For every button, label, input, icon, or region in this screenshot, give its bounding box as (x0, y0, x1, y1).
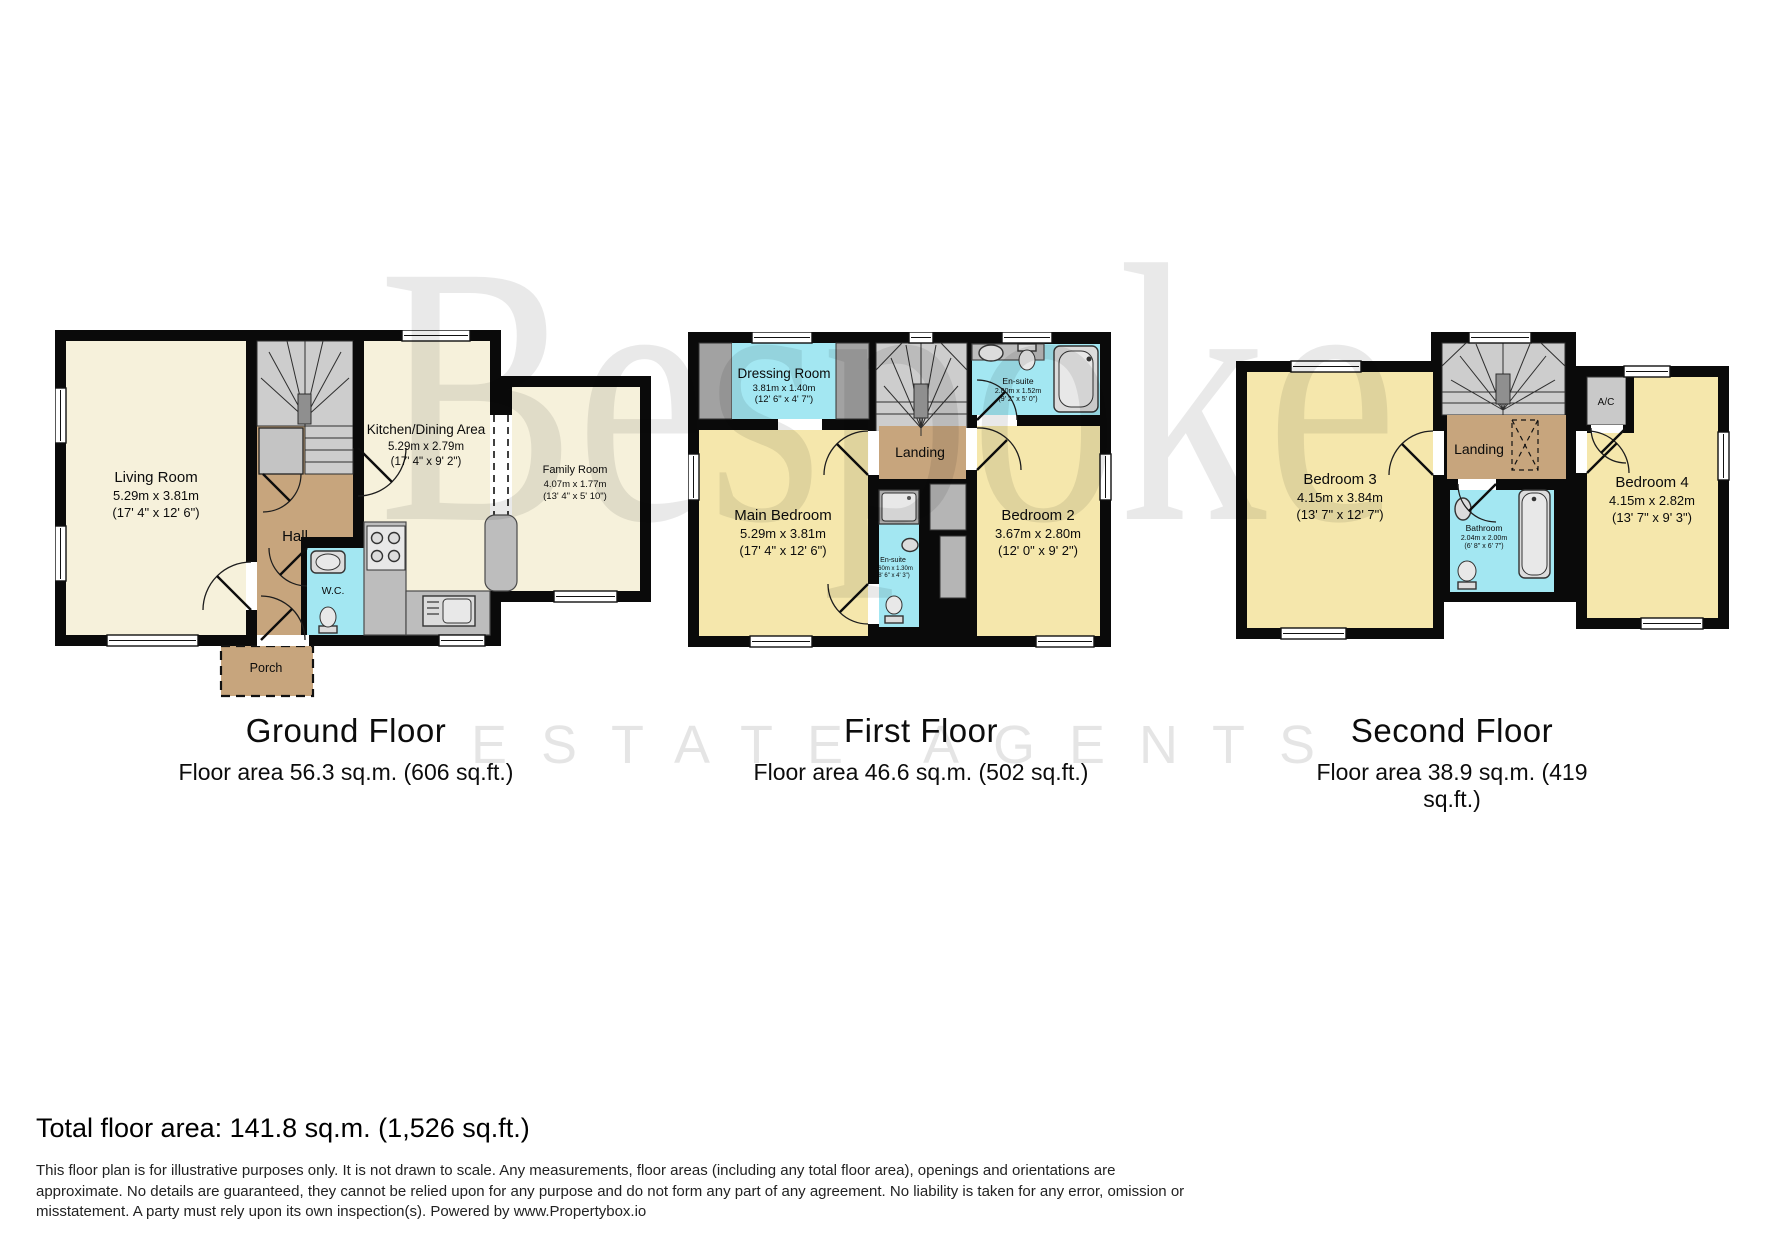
toilet-fixture (1458, 561, 1476, 589)
sink-fixture (979, 345, 1003, 361)
hall-label: Hall (282, 528, 308, 545)
disclaimer-line-3: misstatement. A party must rely upon its… (36, 1202, 1184, 1223)
toilet-fixture (319, 607, 337, 633)
second-floor-caption: Second Floor Floor area 38.9 sq.m. (419 … (1293, 712, 1612, 813)
kitchen-sink-fixture (423, 596, 475, 626)
disclaimer: This floor plan is for illustrative purp… (36, 1161, 1184, 1223)
disclaimer-line-2: approximate. No details are guaranteed, … (36, 1182, 1184, 1203)
bathtub-fixture (1054, 346, 1098, 412)
sink-fixture (1455, 498, 1471, 520)
living-room-imperial: (17' 4" x 12' 6") (112, 505, 199, 520)
ground-floor-caption: Ground Floor Floor area 56.3 sq.m. (606 … (179, 712, 514, 786)
bathtub-fixture (1519, 490, 1550, 578)
second-floor-plan: Bedroom 3 4.15m x 3.84m (13' 7" x 12' 7"… (1236, 332, 1730, 640)
first-floor-caption: First Floor Floor area 46.6 sq.m. (502 s… (754, 712, 1089, 786)
wardrobe (836, 343, 869, 419)
wardrobe (699, 343, 732, 419)
landing-label: Landing (1454, 441, 1504, 457)
bedroom-4-imperial: (13' 7" x 9' 3") (1612, 510, 1692, 525)
main-bedroom-imperial: (17' 4" x 12' 6") (739, 543, 826, 558)
family-room-imperial: (13' 4" x 5' 10") (543, 491, 607, 502)
dressing-imperial: (12' 6" x 4' 7") (755, 394, 813, 405)
hall-closet (259, 428, 303, 474)
bedroom-3-imperial: (13' 7" x 12' 7") (1296, 507, 1383, 522)
first-floor-area: Floor area 46.6 sq.m. (502 sq.ft.) (754, 759, 1089, 786)
ground-floor-area: Floor area 56.3 sq.m. (606 sq.ft.) (179, 759, 514, 786)
ac-label: A/C (1598, 397, 1615, 408)
dressing-metric: 3.81m x 1.40m (753, 383, 816, 394)
bathroom-imperial: (6' 8" x 6' 7") (1464, 543, 1503, 550)
bathroom-metric: 2.04m x 2.00m (1461, 535, 1507, 542)
main-bedroom-metric: 5.29m x 3.81m (740, 526, 826, 541)
ground-floor-title: Ground Floor (179, 712, 514, 750)
floorplan-sheet: Living Room 5.29m x 3.81m (17' 4" x 12' … (0, 0, 1771, 1239)
living-room-metric: 5.29m x 3.81m (113, 488, 199, 503)
porch-label: Porch (250, 661, 283, 675)
landing-label: Landing (895, 444, 945, 460)
ensuite-top-metric: 2.80m x 1.52m (995, 388, 1041, 395)
cupboard (940, 536, 966, 598)
counter-peninsula (485, 515, 517, 591)
ensuite-top-name: En-suite (1002, 376, 1033, 386)
shower-fixture (879, 490, 919, 524)
second-floor-area: Floor area 38.9 sq.m. (419 sq.ft.) (1293, 759, 1612, 813)
family-room-metric: 4.07m x 1.77m (544, 479, 607, 490)
kitchen-metric: 5.29m x 2.79m (388, 441, 464, 453)
cupboard (930, 484, 966, 530)
dressing-name: Dressing Room (737, 366, 830, 381)
bedroom-4-name: Bedroom 4 (1615, 474, 1688, 491)
toilet-fixture (1018, 344, 1036, 370)
bedroom-4-metric: 4.15m x 2.82m (1609, 493, 1695, 508)
main-bedroom-name: Main Bedroom (734, 507, 832, 524)
disclaimer-line-1: This floor plan is for illustrative purp… (36, 1161, 1184, 1182)
sink-fixture (902, 539, 918, 552)
ground-floor-plan: Living Room 5.29m x 3.81m (17' 4" x 12' … (55, 330, 655, 702)
sink-fixture (311, 551, 345, 573)
second-floor-title: Second Floor (1293, 712, 1612, 750)
bedroom-3-name: Bedroom 3 (1303, 471, 1376, 488)
ensuite-top-imperial: (9' 2" x 5' 0") (998, 396, 1037, 403)
total-floor-area: Total floor area: 141.8 sq.m. (1,526 sq.… (36, 1113, 530, 1144)
bedroom-2-name: Bedroom 2 (1001, 507, 1074, 524)
kitchen-imperial: (17' 4" x 9' 2") (391, 456, 462, 468)
first-floor-plan: Dressing Room 3.81m x 1.40m (12' 6" x 4'… (688, 332, 1112, 648)
living-room-name: Living Room (114, 469, 197, 486)
bathroom-name: Bathroom (1466, 523, 1503, 533)
bedroom-2-imperial: (12' 0" x 9' 2") (998, 543, 1078, 558)
kitchen-name: Kitchen/Dining Area (367, 422, 486, 437)
bedroom-2-metric: 3.67m x 2.80m (995, 526, 1081, 541)
room-dressing (732, 343, 836, 419)
toilet-fixture (885, 596, 903, 623)
hob-fixture (367, 526, 405, 570)
ensuite-mid-name: En-suite (880, 557, 906, 564)
first-floor-title: First Floor (754, 712, 1089, 750)
bedroom-3-metric: 4.15m x 3.84m (1297, 490, 1383, 505)
family-room-name: Family Room (543, 464, 608, 476)
ensuite-mid-metric: 2.60m x 1.30m (873, 566, 913, 572)
wc-label: W.C. (322, 585, 345, 597)
ensuite-mid-imperial: (8' 6" x 4' 3") (876, 573, 910, 579)
